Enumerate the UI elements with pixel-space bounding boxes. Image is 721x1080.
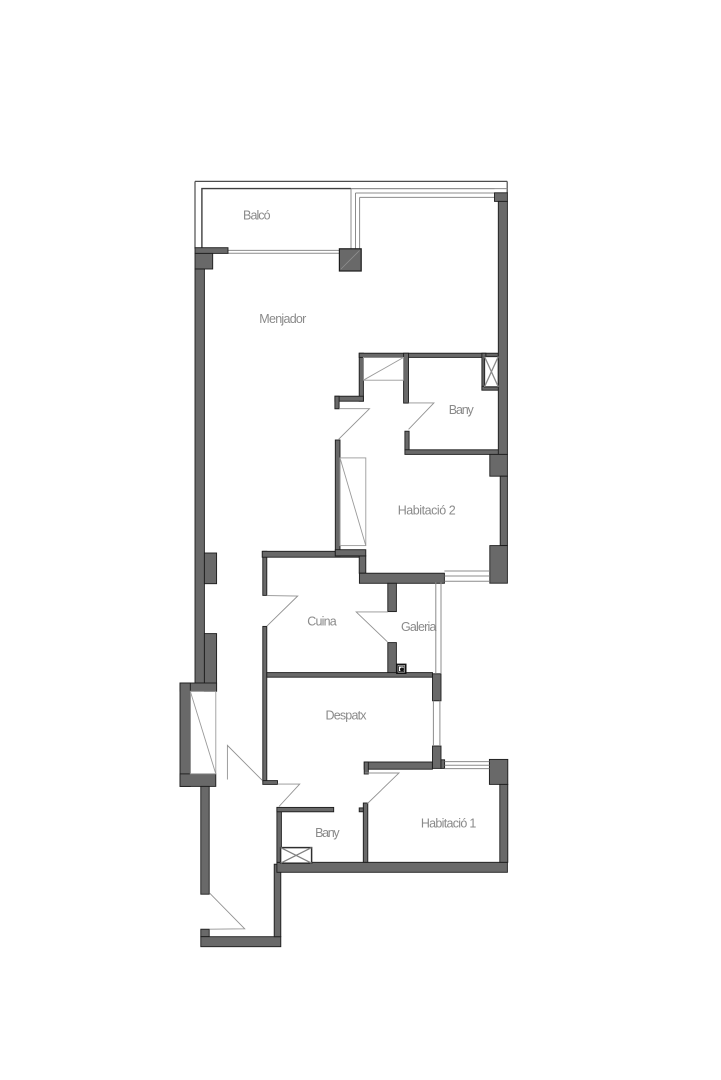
- svg-text:Habitació 2: Habitació 2: [398, 504, 456, 518]
- svg-text:Balcó: Balcó: [243, 208, 271, 222]
- svg-text:Bany: Bany: [315, 826, 340, 840]
- svg-text:Despatx: Despatx: [326, 709, 368, 723]
- svg-text:Menjador: Menjador: [259, 312, 306, 326]
- svg-text:Bany: Bany: [449, 403, 475, 417]
- svg-text:Cuina: Cuina: [307, 615, 337, 629]
- svg-text:Galeria: Galeria: [401, 620, 437, 634]
- svg-text:Habitació 1: Habitació 1: [421, 817, 477, 831]
